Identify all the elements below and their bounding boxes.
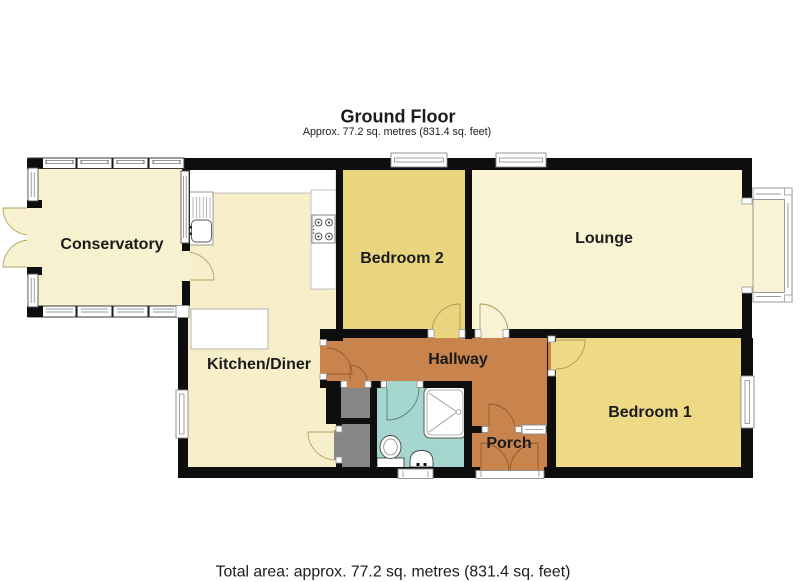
svg-text:Conservatory: Conservatory	[60, 236, 163, 253]
svg-text:Lounge: Lounge	[575, 230, 633, 247]
svg-text:Total area: approx. 77.2 sq. m: Total area: approx. 77.2 sq. metres (831…	[216, 564, 571, 581]
svg-text:Bedroom 2: Bedroom 2	[360, 250, 444, 267]
svg-text:Ground Floor: Ground Floor	[341, 107, 456, 127]
svg-text:Bedroom 1: Bedroom 1	[608, 404, 692, 421]
svg-text:Hallway: Hallway	[428, 351, 488, 368]
svg-text:Kitchen/Diner: Kitchen/Diner	[207, 356, 311, 373]
svg-text:Approx. 77.2 sq. metres (831.4: Approx. 77.2 sq. metres (831.4 sq. feet)	[303, 126, 491, 138]
svg-text:Porch: Porch	[486, 435, 531, 452]
